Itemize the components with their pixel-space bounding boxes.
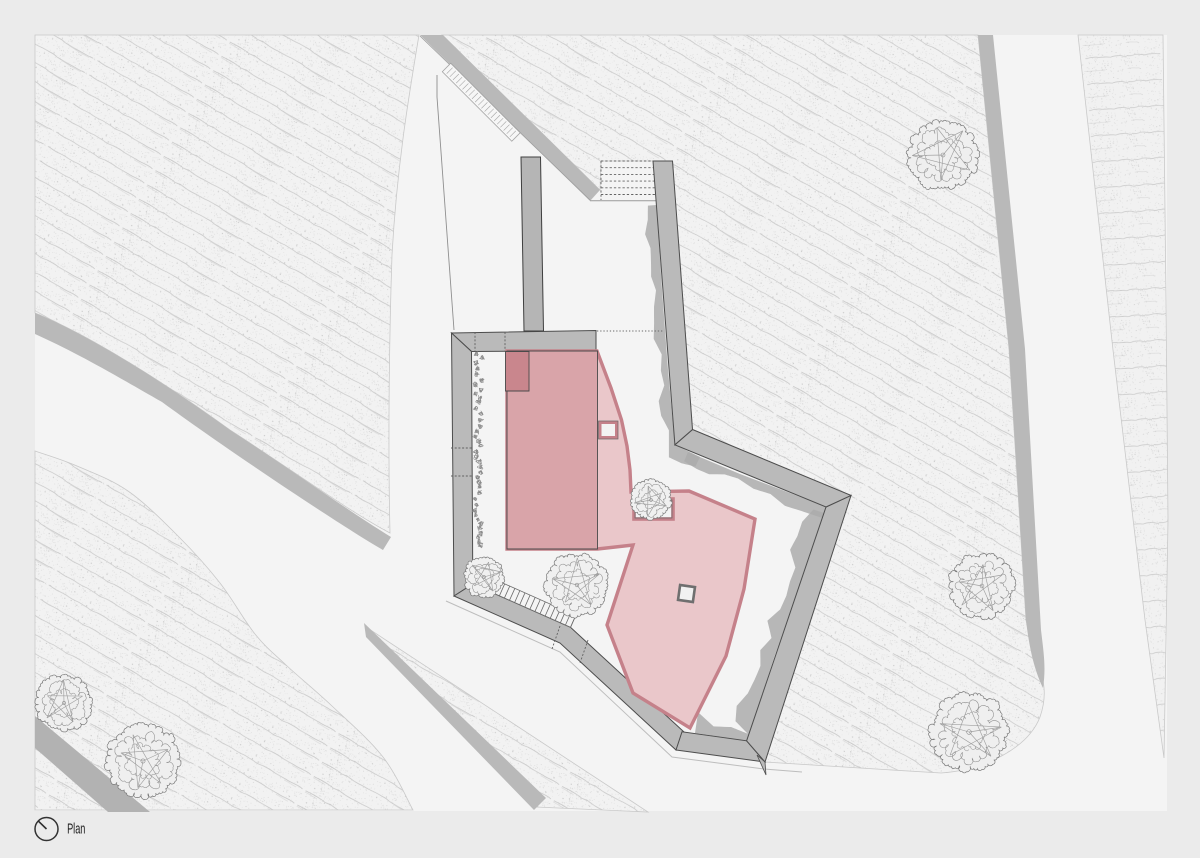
svg-text:Plan: Plan [67,820,85,837]
